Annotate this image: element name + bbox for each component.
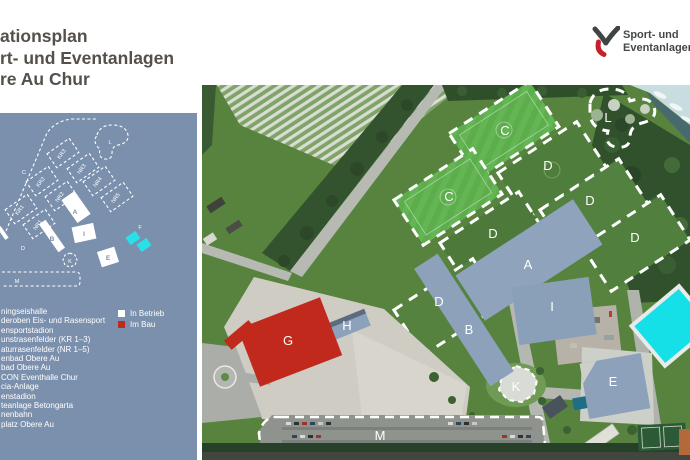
logo-text-line-2: Eventanlagen (623, 42, 690, 55)
clay-court (679, 429, 690, 455)
legend-item: ensportstadion (1, 326, 105, 335)
svg-text:K: K (68, 259, 72, 265)
in-betrieb-label: In Betrieb (130, 308, 164, 319)
svg-text:B: B (50, 236, 55, 243)
situationsplan-page: ationsplan rt- und Eventanlagen re Au Ch… (0, 0, 690, 460)
svg-text:C: C (22, 170, 26, 176)
svg-text:D: D (21, 246, 25, 252)
title-line-2: rt- und Eventanlagen (0, 48, 174, 70)
svg-text:D: D (543, 158, 552, 173)
status-im-bau: Im Bau (118, 319, 164, 330)
legend-item: platz Obere Au (1, 420, 105, 429)
svg-text:H: H (342, 318, 351, 333)
svg-text:G: G (283, 333, 293, 348)
legend-item: aturrasenfelder (NR 1–5) (1, 345, 105, 354)
minimap: C L KR3 NR3 KR2 NR4 NR2 NR5 KR1 NR1 A I … (0, 113, 197, 299)
sport-eventanlagen-logo-icon (592, 26, 620, 58)
svg-text:D: D (630, 230, 639, 245)
svg-text:M: M (15, 279, 20, 285)
status-in-betrieb: In Betrieb (118, 308, 164, 319)
svg-text:D: D (488, 226, 497, 241)
svg-text:L: L (108, 140, 111, 146)
minimap-zone-l-outline (95, 125, 128, 159)
logo-text: Sport- und Eventanlagen (623, 29, 690, 55)
logo-text-line-1: Sport- und (623, 29, 690, 42)
in-betrieb-swatch (118, 310, 125, 317)
svg-text:I: I (83, 231, 85, 238)
legend-item: nenbahn (1, 410, 105, 419)
minimap-pools (126, 231, 152, 252)
svg-text:A: A (73, 209, 78, 216)
svg-text:D: D (434, 294, 443, 309)
legend-item: enstadion (1, 392, 105, 401)
svg-text:A: A (524, 257, 533, 272)
bottom-hedge (202, 443, 690, 452)
svg-text:M: M (375, 428, 386, 443)
legend-item: teanlage Betongarta (1, 401, 105, 410)
title-line-1: ationsplan (0, 26, 174, 48)
legend-item: deroben Eis- und Rasensport (1, 316, 105, 325)
svg-text:E: E (609, 374, 618, 389)
page-title: ationsplan rt- und Eventanlagen re Au Ch… (0, 26, 174, 91)
logo: Sport- und Eventanlagen (592, 26, 690, 66)
title-line-3: re Au Chur (0, 69, 174, 91)
aerial-map: C D C D D D D L A I B H G E K M (202, 85, 690, 460)
legend-item: ningseishalle (1, 307, 105, 316)
sidebar: C L KR3 NR3 KR2 NR4 NR2 NR5 KR1 NR1 A I … (0, 113, 197, 460)
svg-text:L: L (604, 110, 611, 125)
legend-list: ningseishalle deroben Eis- und Rasenspor… (1, 307, 105, 429)
svg-text:E: E (106, 255, 111, 262)
legend-item: enbad Obere Au (1, 354, 105, 363)
status-legend: In Betrieb Im Bau (118, 308, 164, 330)
bottom-road (202, 452, 690, 460)
svg-text:NR5: NR5 (111, 192, 122, 204)
svg-text:C: C (500, 123, 509, 138)
svg-text:NR4: NR4 (93, 176, 104, 188)
roundabout-center (221, 373, 229, 381)
im-bau-label: Im Bau (130, 319, 155, 330)
svg-text:K: K (512, 379, 521, 394)
svg-text:KR3: KR3 (57, 148, 68, 160)
svg-text:F: F (138, 225, 142, 231)
svg-text:D: D (585, 193, 594, 208)
legend-item: cia-Anlage (1, 382, 105, 391)
svg-text:C: C (444, 189, 453, 204)
svg-text:B: B (465, 322, 474, 337)
minimap-parking-outline (2, 272, 80, 286)
legend-item: bad Obere Au (1, 363, 105, 372)
svg-text:I: I (550, 299, 554, 314)
building-i (511, 277, 596, 345)
legend-item: CON Eventhalle Chur (1, 373, 105, 382)
svg-text:NR3: NR3 (77, 163, 88, 175)
legend-item: unstrasenfelder (KR 1–3) (1, 335, 105, 344)
svg-text:KR1: KR1 (15, 204, 26, 216)
svg-text:KR2: KR2 (36, 176, 47, 188)
im-bau-swatch (118, 321, 125, 328)
